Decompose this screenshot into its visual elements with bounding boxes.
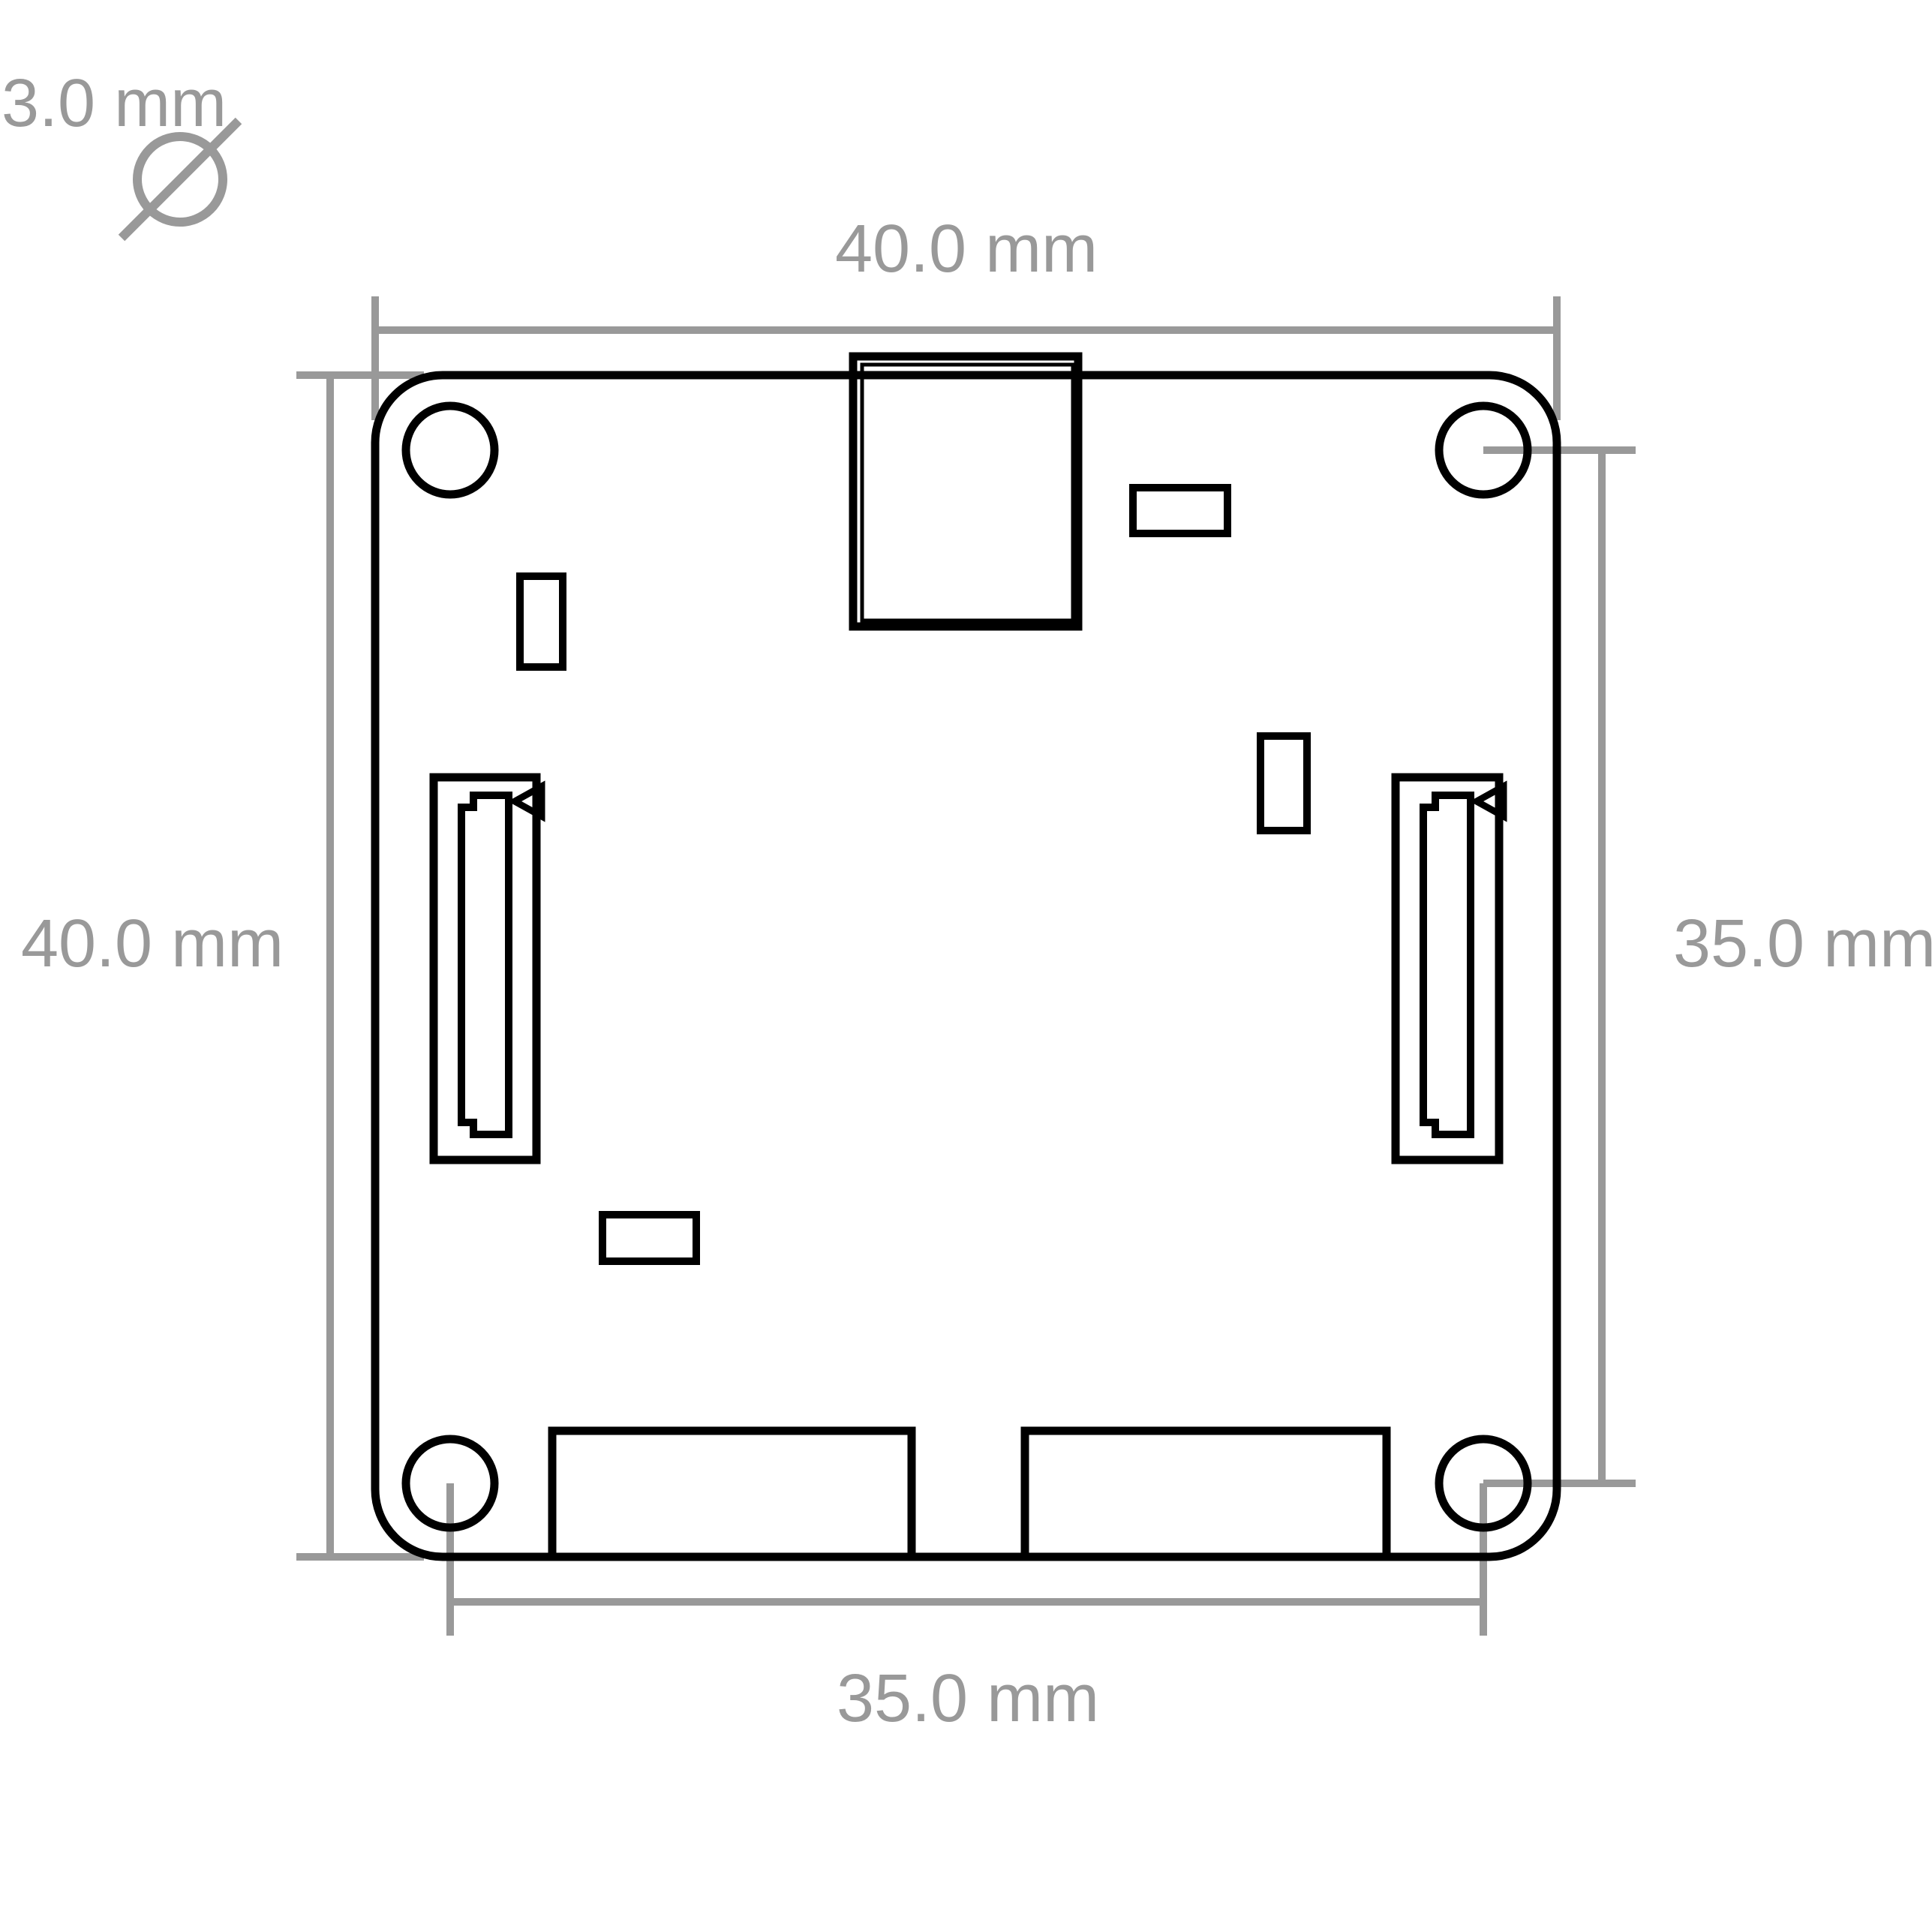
hole-diameter-label: 3.0 mm <box>2 66 227 141</box>
hole-spacing-horizontal-label: 35.0 mm <box>837 1661 1099 1736</box>
board-height-label: 40.0 mm <box>21 906 284 981</box>
flex-connector-right-outline <box>1396 777 1499 1160</box>
flex-connector-right-housing <box>1423 795 1471 1134</box>
flex-connector-left <box>434 777 542 1160</box>
bottom-header-left <box>552 1431 912 1557</box>
usb-connector <box>853 356 1078 626</box>
bottom-header-right <box>1025 1431 1387 1557</box>
board-outline <box>375 375 1557 1557</box>
dimension-hole-spacing-horizontal: 35.0 mm <box>450 1483 1483 1736</box>
component-outline-top-right <box>1133 488 1227 533</box>
pcb-dimension-drawing: 3.0 mm 40.0 mm 40.0 mm 35.0 mm 35.0 mm <box>0 0 1932 1932</box>
hole-diameter-callout: 3.0 mm <box>2 66 239 238</box>
dimension-board-width: 40.0 mm <box>375 212 1557 420</box>
usb-connector-body <box>862 365 1073 620</box>
flex-connector-right <box>1396 777 1504 1160</box>
dimension-hole-spacing-vertical: 35.0 mm <box>1483 450 1932 1483</box>
pcb-board <box>375 356 1557 1557</box>
flex-connector-left-housing <box>461 795 509 1134</box>
board-width-label: 40.0 mm <box>835 212 1098 287</box>
dimension-board-height: 40.0 mm <box>21 375 424 1557</box>
component-outline-upper-left <box>520 576 563 667</box>
component-outline-mid-right <box>1260 736 1307 831</box>
hole-spacing-vertical-label: 35.0 mm <box>1673 906 1932 981</box>
mounting-hole-top-left <box>406 406 494 494</box>
flex-connector-left-outline <box>434 777 536 1160</box>
component-outline-lower-left <box>602 1215 696 1261</box>
usb-connector-shield <box>853 356 1078 626</box>
